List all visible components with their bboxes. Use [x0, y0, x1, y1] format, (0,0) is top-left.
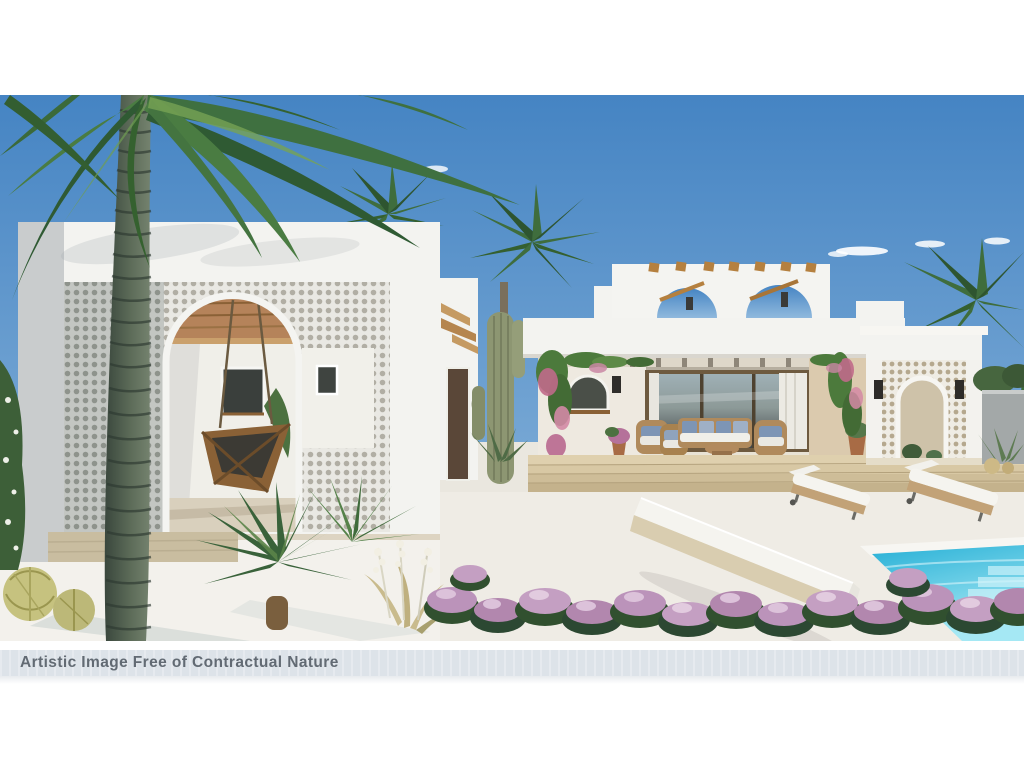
outdoor-lounge-set [636, 418, 787, 457]
sofa [678, 418, 752, 448]
caption-fade [0, 676, 1024, 684]
gateway-structure [860, 326, 988, 465]
caption-text: Artistic Image Free of Contractual Natur… [20, 650, 339, 676]
gateway-lantern [874, 380, 883, 399]
render-scene [0, 95, 1024, 641]
arch-interior [166, 294, 299, 534]
gateway-lantern [955, 380, 964, 399]
wall-sconce [612, 376, 621, 393]
interior-window [222, 368, 264, 414]
roof-lantern [686, 297, 693, 310]
roof-lantern [781, 292, 788, 307]
armchair [754, 420, 787, 456]
villa-render-image [0, 95, 1024, 641]
left-pavilion [18, 216, 440, 562]
door [447, 368, 469, 480]
fascia [523, 318, 905, 358]
caption-bar: Artistic Image Free of Contractual Natur… [0, 650, 1024, 676]
page: Artistic Image Free of Contractual Natur… [0, 0, 1024, 768]
arched-niche-window [568, 376, 608, 410]
pavilion-window [317, 366, 337, 394]
pavilion-wall-patch [302, 348, 374, 448]
